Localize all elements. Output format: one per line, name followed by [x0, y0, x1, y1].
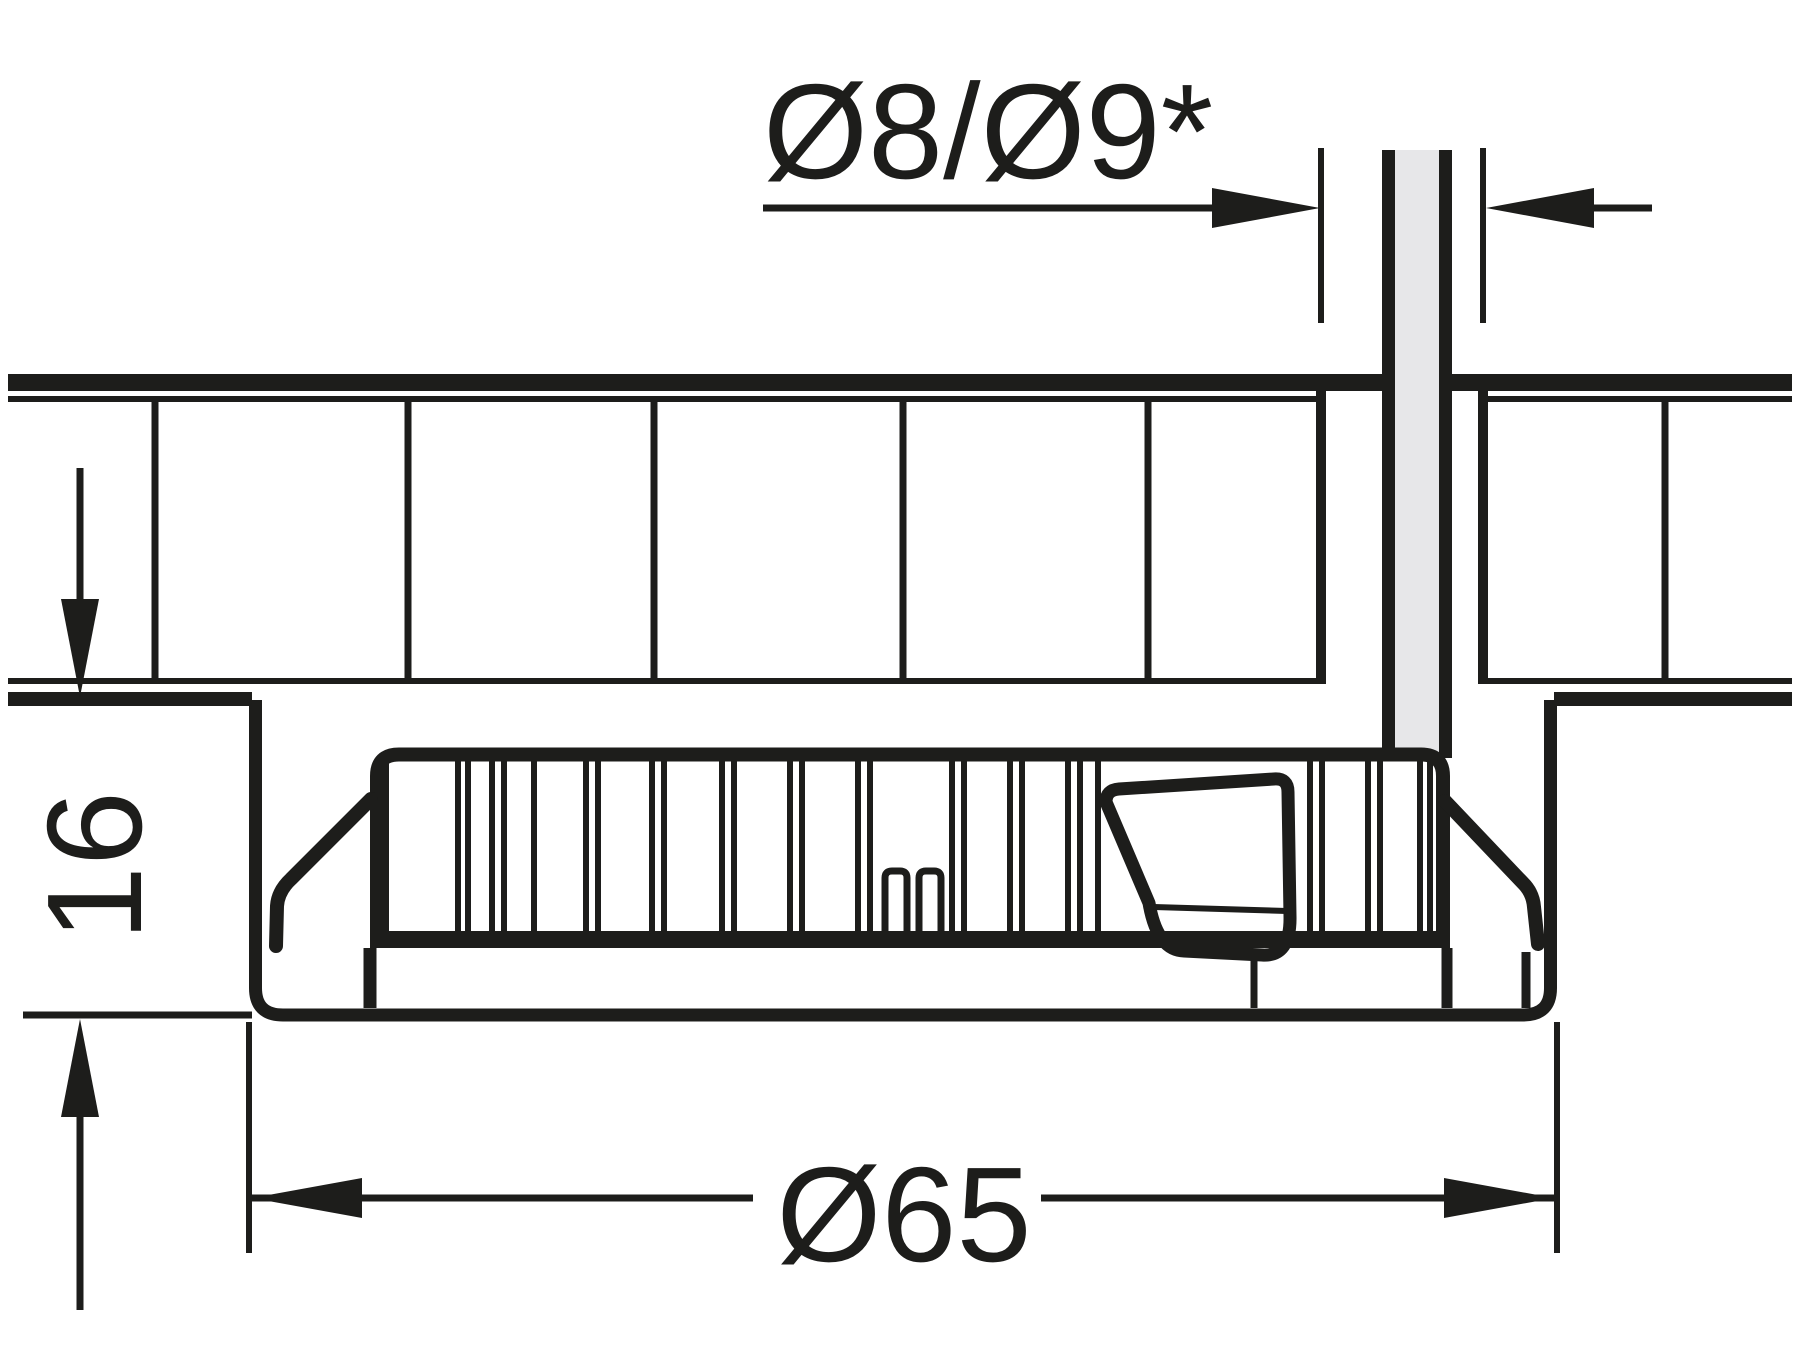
cable-hole-dimension-label: Ø8/Ø9* [763, 56, 1213, 207]
depth-extension-line-bottom [23, 1012, 252, 1019]
panel-bottom-inner-line-left [8, 678, 1321, 684]
diameter-arrow-left [252, 1178, 362, 1218]
panel-bottom-surface-line-right [1554, 692, 1792, 706]
cable-sheath-left [1382, 150, 1395, 758]
depth-arrow-up-head [61, 1019, 99, 1117]
cable-core [1395, 150, 1439, 758]
cable-hole-dimension: Ø8/Ø9* [763, 56, 1652, 323]
technical-diagram-canvas: Ø8/Ø9* [0, 0, 1800, 1350]
panel-top-inner-line-right [1484, 396, 1792, 402]
clip-lever-bend-line [1154, 907, 1287, 911]
depth-dimension: 16 [19, 468, 252, 1310]
panel-bottom-inner-line-right [1484, 678, 1792, 684]
diameter-arrow-right [1444, 1178, 1554, 1218]
panel-top-surface-line [8, 374, 1792, 391]
depth-arrow-up-stem [77, 1114, 84, 1310]
cable-hole-arrow-left [1212, 188, 1320, 228]
panel-cross-section [8, 374, 1792, 706]
power-cable [1382, 150, 1452, 758]
lamp-shelf-line [370, 931, 1450, 948]
installation-drawing: Ø8/Ø9* [0, 0, 1800, 1350]
depth-dimension-label: 16 [19, 791, 170, 941]
retaining-clip-right [1445, 801, 1538, 944]
retaining-clip-left [276, 799, 371, 946]
diameter-dimension: Ø65 [249, 1022, 1557, 1290]
recessed-light-fixture [256, 700, 1551, 1015]
panel-bottom-surface-line-left [8, 692, 252, 706]
cable-sheath-right [1439, 150, 1452, 758]
panel-top-inner-line-left [8, 396, 1321, 402]
cable-hole-arrow-right [1486, 188, 1594, 228]
diameter-dimension-label: Ø65 [776, 1139, 1031, 1290]
depth-arrow-down-stem [77, 468, 84, 600]
cable-hole-dimension-line-right [1594, 205, 1652, 212]
cable-hole-dimension-line-left [763, 205, 1215, 212]
